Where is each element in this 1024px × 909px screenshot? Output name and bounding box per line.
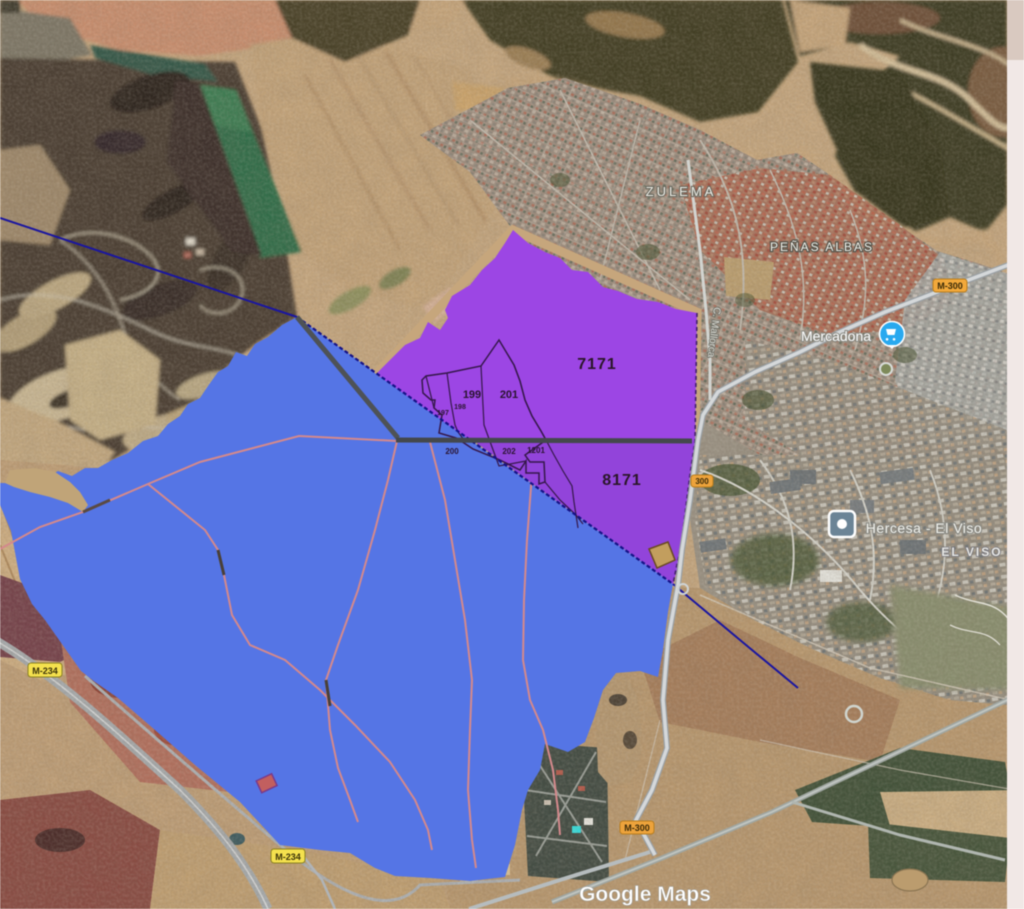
svg-text:Hercesa - El Viso: Hercesa - El Viso xyxy=(866,520,982,536)
svg-text:M-234: M-234 xyxy=(275,852,301,862)
svg-text:M-234: M-234 xyxy=(32,666,58,676)
svg-text:199: 199 xyxy=(463,389,481,401)
svg-text:8171: 8171 xyxy=(602,472,642,489)
svg-text:200: 200 xyxy=(445,447,459,456)
svg-text:ZULEMA: ZULEMA xyxy=(646,184,717,199)
svg-text:M-300: M-300 xyxy=(937,281,963,291)
svg-text:EL VISO: EL VISO xyxy=(941,545,1002,559)
svg-text:202: 202 xyxy=(502,447,516,456)
svg-text:198: 198 xyxy=(454,404,466,411)
svg-text:M-300: M-300 xyxy=(624,823,650,833)
svg-text:197: 197 xyxy=(437,410,449,417)
svg-text:300: 300 xyxy=(695,477,709,486)
svg-text:201: 201 xyxy=(500,389,518,401)
svg-text:PEÑAS ALBAS: PEÑAS ALBAS xyxy=(770,240,874,254)
svg-text:Mercadona: Mercadona xyxy=(801,328,871,344)
svg-text:1201: 1201 xyxy=(527,446,545,455)
svg-text:Google Maps: Google Maps xyxy=(579,883,711,906)
svg-text:7171: 7171 xyxy=(577,356,617,373)
